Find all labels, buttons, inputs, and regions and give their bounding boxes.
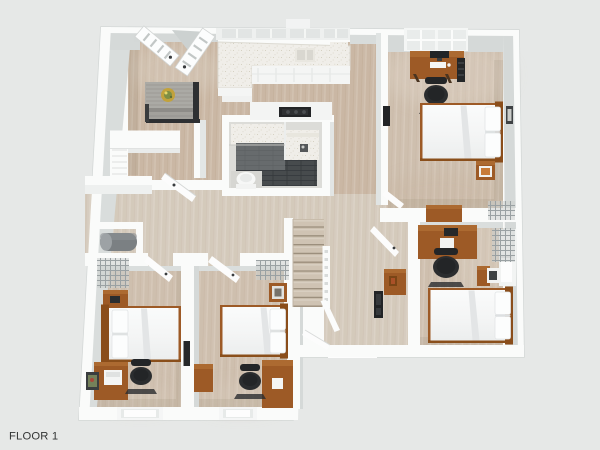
svg-text:FLOOR 1: FLOOR 1 [9,431,58,443]
